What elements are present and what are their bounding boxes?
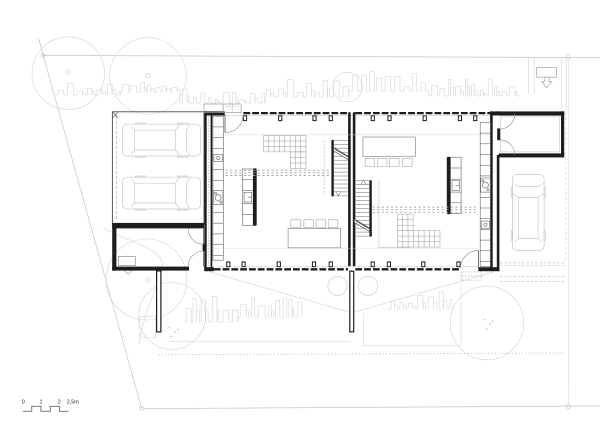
svg-text:1: 1 — [40, 399, 43, 405]
svg-text:2,5m: 2,5m — [67, 399, 79, 405]
svg-text:0: 0 — [22, 399, 25, 405]
svg-text:2: 2 — [58, 399, 61, 405]
